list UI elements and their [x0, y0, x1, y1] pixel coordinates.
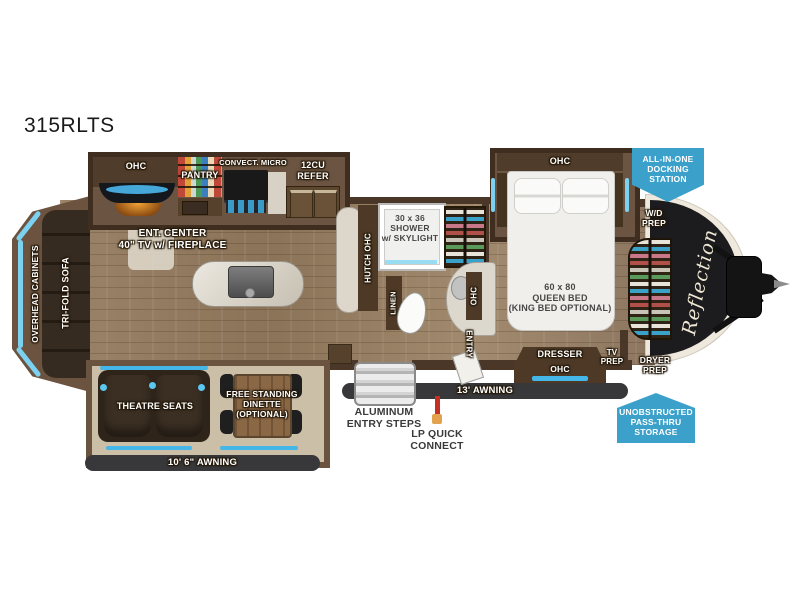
dresser-accent-icon: [532, 376, 588, 381]
entry-steps: [354, 362, 416, 406]
rear-cap: [12, 196, 90, 392]
lp-connect-icon: [435, 396, 440, 416]
rear-window-icon: [18, 240, 23, 348]
cupholder-icon-1: [100, 384, 107, 391]
pantry-label: PANTRY: [174, 170, 226, 181]
lp-connect-label: LP QUICK CONNECT: [402, 428, 472, 453]
convect-micro-label: CONVECT. MICRO: [218, 159, 288, 168]
cupholder-icon-3: [198, 384, 205, 391]
microwave-icon: [182, 201, 208, 215]
refrigerator: [286, 186, 340, 218]
awning-main-label: 13' AWNING: [457, 385, 513, 396]
wd-prep-label: W/D PREP: [634, 208, 674, 228]
wardrobe-closet: [444, 206, 486, 268]
nightstand-left: [497, 173, 507, 227]
lp-connect-tip-icon: [432, 414, 442, 424]
floorplan-image: 315RLTS OVERHEAD CABINETS TRI-FOLD SOFA …: [0, 0, 800, 600]
refer-drawer-right: [314, 190, 337, 218]
dinette-label: FREE STANDING DINETTE (OPTIONAL): [221, 389, 303, 419]
dresser-label: DRESSER: [514, 349, 606, 360]
dresser-ohc-label: OHC: [514, 364, 606, 374]
bedroom-window-left-icon: [491, 178, 495, 212]
page-title: 315RLTS: [24, 114, 115, 138]
refer-label: 12CU REFER: [288, 160, 338, 181]
rear-window-bottom-icon: [15, 346, 41, 377]
living-slide-window-left-icon: [106, 446, 192, 450]
kitchen-ohc-label: OHC: [93, 161, 179, 172]
theatre-seats-label: THEATRE SEATS: [106, 401, 204, 412]
cupholder-icon-2: [149, 382, 156, 389]
bedroom-ohc-label: OHC: [497, 156, 623, 167]
shower-glass-icon: [385, 260, 437, 264]
cooktop-icon: [226, 200, 266, 213]
ent-center-label: ENT. CENTER 40" TV w/ FIREPLACE: [85, 228, 260, 252]
passthru-storage-badge: UNOBSTRUCTED PASS-THRU STORAGE: [617, 393, 695, 443]
tv-screen-icon: [106, 185, 168, 194]
queen-bed-label: 60 x 80 QUEEN BED (KING BED OPTIONAL): [507, 282, 613, 314]
bedroom-window-right-icon: [625, 178, 629, 212]
refer-drawer-left: [290, 190, 313, 218]
awning-patio: 10' 6" AWNING: [85, 455, 320, 471]
pillow-left: [514, 178, 561, 214]
awning-patio-label: 10' 6" AWNING: [168, 457, 237, 468]
shower-label: 30 x 36 SHOWER w/ SKYLIGHT: [378, 213, 442, 243]
range-icon: [224, 170, 268, 203]
passthru-storage-badge-text: UNOBSTRUCTED PASS-THRU STORAGE: [617, 407, 695, 437]
kitchen-counter: [268, 172, 286, 214]
pillow-right: [562, 178, 609, 214]
tv-prep-label: TV PREP: [596, 348, 628, 367]
island-faucet-icon: [245, 288, 255, 298]
docking-station-badge-text: ALL-IN-ONE DOCKING STATION: [632, 154, 704, 184]
rear-window-top-icon: [15, 210, 41, 241]
entry-side-cabinet: [328, 344, 352, 364]
wall-bottom-b: [412, 360, 458, 370]
living-slide-window-right-icon: [220, 446, 298, 450]
front-wardrobe: [628, 238, 672, 340]
fireplace-icon: [115, 203, 161, 216]
dryer-prep-label: DRYER PREP: [632, 355, 678, 375]
docking-station-badge: ALL-IN-ONE DOCKING STATION: [632, 148, 704, 202]
